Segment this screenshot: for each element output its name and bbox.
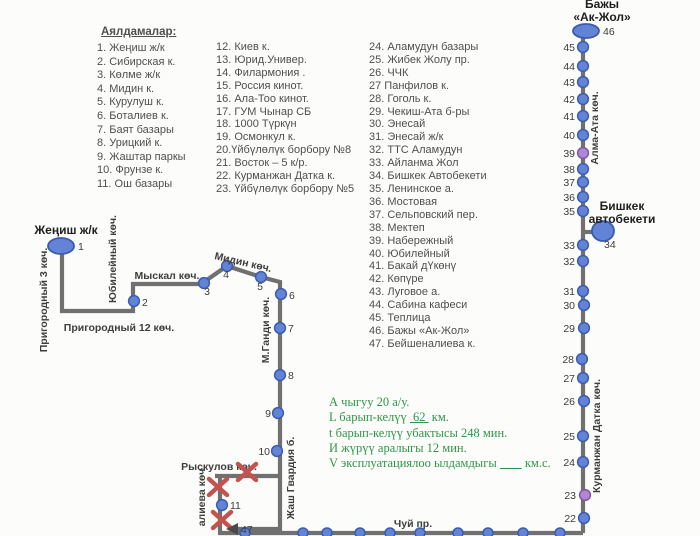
street-name-label: Чуй пр.	[394, 518, 432, 530]
stop-number-label: 26	[563, 396, 575, 408]
stop-number-label: 36	[563, 192, 575, 204]
stop-dot	[578, 206, 589, 217]
stop-number-label: 29	[563, 323, 575, 335]
stop-dot	[578, 373, 589, 384]
route-scheme-page: { "list": { "header": "Аялдамалар:", "co…	[0, 0, 700, 536]
stop-dot	[578, 61, 589, 72]
stop-dot	[578, 130, 589, 141]
stop-dot	[578, 256, 589, 267]
stop-number-label: 31	[563, 286, 575, 298]
stop-number-label: 25	[563, 431, 575, 443]
terminal-title: Жеңиш ж/к	[33, 223, 98, 237]
stop-dot	[272, 446, 283, 457]
stop-dot-highlighted	[578, 148, 589, 159]
street-name-label: алиева көч.	[196, 466, 208, 527]
street-name-label: Юбилейный көч.	[107, 215, 119, 303]
route-map-diagram: 2345678910112223242526272829303132333536…	[0, 0, 700, 536]
stop-dot	[275, 323, 286, 334]
stop-number-label: 22	[564, 513, 576, 525]
stop-dot	[578, 42, 589, 53]
terminal-stop-ellipse	[573, 24, 599, 38]
stop-number-label: 33	[563, 240, 575, 252]
stop-dot	[276, 289, 287, 300]
stop-dot	[579, 396, 590, 407]
stop-number-label: 27	[563, 373, 575, 385]
stop-number-label: 46	[603, 26, 615, 38]
stop-number-label: 40	[563, 130, 575, 142]
stop-number-label: 45	[563, 42, 575, 54]
stop-dot	[578, 77, 589, 88]
stop-number-label: 6	[289, 290, 295, 302]
stop-number-label: 4	[223, 269, 229, 281]
terminal-title: автобекети	[589, 212, 656, 226]
stop-number-label: 10	[258, 446, 270, 458]
stop-dot	[579, 323, 590, 334]
stop-dot	[578, 240, 589, 251]
stop-dot	[578, 192, 589, 203]
stop-number-label: 35	[563, 206, 575, 218]
stop-dot	[578, 94, 589, 105]
stop-number-label: 24	[563, 457, 575, 469]
terminal-title: Бишкек	[600, 199, 646, 213]
stop-dot	[555, 528, 565, 536]
stop-number-label: 34	[604, 239, 616, 251]
stop-dot	[578, 111, 589, 122]
stop-dot	[577, 354, 588, 365]
terminal-stop-ellipse	[48, 238, 74, 254]
stop-number-label: 39	[563, 148, 575, 160]
stop-dot	[453, 528, 463, 536]
stop-dot	[578, 431, 589, 442]
stop-number-label: 8	[288, 370, 294, 382]
stop-number-label: 32	[563, 256, 575, 268]
street-name-label: Мыскал көч.	[135, 270, 200, 282]
stop-dot	[578, 164, 589, 175]
stop-dot	[273, 408, 284, 419]
stop-dot	[483, 528, 493, 536]
street-name-label: Пригородный 12 көч.	[64, 322, 174, 334]
stop-number-label: 47	[241, 524, 253, 536]
stop-number-label: 23	[564, 490, 576, 502]
stop-number-label: 28	[562, 354, 574, 366]
stop-number-label: 1	[78, 241, 84, 253]
left-route-line	[62, 252, 280, 533]
stop-number-label: 42	[563, 94, 575, 106]
stop-number-label: 7	[288, 323, 294, 335]
stop-dot	[129, 296, 140, 307]
stop-dot	[322, 528, 332, 536]
street-name-label: Курманжан Датка көч.	[591, 379, 603, 493]
stop-number-label: 38	[563, 164, 575, 176]
terminal-title: «Ак-Жол»	[573, 10, 631, 24]
stop-dot	[275, 370, 286, 381]
street-name-label: Жаш Гвардия б.	[285, 437, 297, 521]
stop-dot	[518, 528, 528, 536]
stop-number-label: 37	[563, 177, 575, 189]
stop-number-label: 30	[563, 300, 575, 312]
street-name-label: Пригородный 3 көч.	[38, 248, 50, 353]
street-name-label: Алма-Ата көч.	[589, 91, 601, 164]
stop-dot	[298, 528, 308, 536]
stop-dot	[579, 300, 590, 311]
street-name-label: М.Ганди көч.	[260, 297, 272, 363]
stop-number-label: 43	[563, 77, 575, 89]
stop-dot	[217, 500, 228, 511]
stop-number-label: 41	[563, 111, 575, 123]
stop-dot	[355, 528, 365, 536]
stop-number-label: 3	[204, 286, 210, 298]
stop-dot	[579, 513, 590, 524]
stop-dot-highlighted	[580, 490, 591, 501]
stop-dot	[578, 457, 589, 468]
stop-dot	[578, 286, 589, 297]
stop-number-label: 9	[265, 408, 271, 420]
stop-number-label: 44	[563, 61, 575, 73]
stop-dot	[578, 177, 589, 188]
stop-number-label: 2	[142, 297, 148, 309]
stop-number-label: 5	[257, 281, 263, 293]
